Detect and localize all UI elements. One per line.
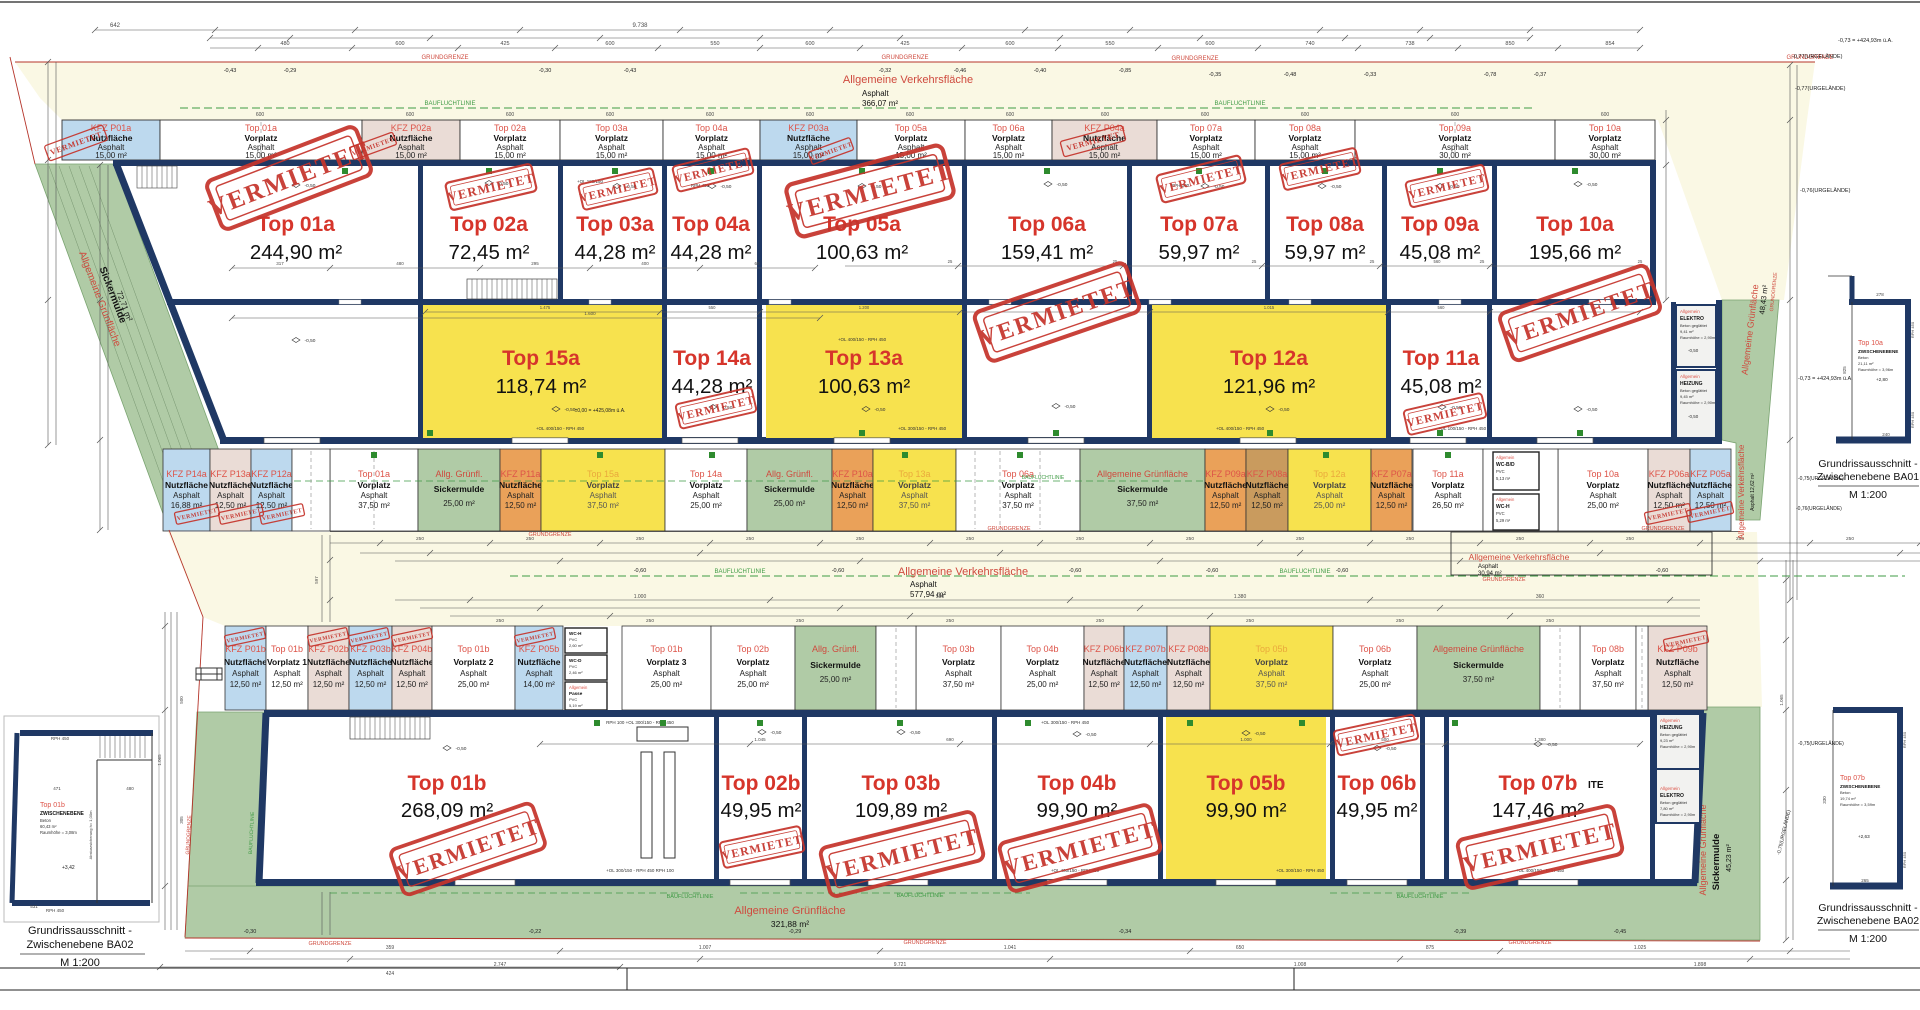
svg-text:-0,50: -0,50	[1057, 182, 1068, 188]
svg-text:Top 11a: Top 11a	[1432, 469, 1463, 479]
svg-text:Asphalt: Asphalt	[232, 669, 259, 678]
svg-text:Top 04b: Top 04b	[1026, 644, 1058, 654]
svg-text:250: 250	[646, 618, 654, 624]
svg-text:25: 25	[1480, 259, 1485, 264]
svg-text:-0,50: -0,50	[565, 407, 576, 413]
svg-text:12,50 m²: 12,50 m²	[215, 501, 247, 510]
svg-text:Nutzfläche: Nutzfläche	[307, 657, 350, 667]
svg-text:825: 825	[1842, 366, 1847, 374]
svg-text:72,45 m²: 72,45 m²	[449, 241, 530, 264]
svg-text:425: 425	[500, 41, 509, 47]
svg-text:-0,50: -0,50	[771, 730, 782, 736]
svg-text:Allg. Grünfl.: Allg. Grünfl.	[435, 469, 482, 479]
svg-text:Beton geglättet: Beton geglättet	[1660, 732, 1688, 737]
svg-text:BAUFLUCHTLINIE: BAUFLUCHTLINIE	[714, 569, 765, 575]
svg-text:Raumhöhe = 2,90m: Raumhöhe = 2,90m	[1660, 744, 1696, 749]
svg-text:Nutzfläche: Nutzfläche	[787, 133, 830, 143]
svg-text:1.015: 1.015	[1264, 305, 1275, 310]
svg-text:59,97 m²: 59,97 m²	[1285, 241, 1366, 264]
svg-text:Vorplatz 1: Vorplatz 1	[267, 657, 307, 667]
svg-text:9,41 m²: 9,41 m²	[1680, 329, 1694, 334]
svg-text:KFZ P08a: KFZ P08a	[1247, 469, 1288, 479]
svg-text:738: 738	[1405, 41, 1414, 47]
svg-text:Raumhöhe = 3,59m: Raumhöhe = 3,59m	[1840, 802, 1876, 807]
svg-text:Top 09a: Top 09a	[1401, 213, 1479, 236]
svg-text:Asphalt: Asphalt	[399, 669, 426, 678]
svg-text:25: 25	[1638, 259, 1643, 264]
svg-text:Nutzfläche: Nutzfläche	[1124, 657, 1167, 667]
svg-text:480: 480	[280, 41, 289, 47]
svg-text:650: 650	[1236, 945, 1245, 951]
svg-text:-0,50: -0,50	[1547, 742, 1558, 748]
svg-text:240: 240	[1882, 432, 1890, 437]
svg-text:Sickermulde: Sickermulde	[434, 484, 485, 494]
svg-text:Top 08a: Top 08a	[1286, 213, 1364, 236]
svg-text:Vorplatz: Vorplatz	[992, 133, 1025, 143]
svg-text:Allgemeine Verkehrsfläche: Allgemeine Verkehrsfläche	[1469, 552, 1570, 562]
svg-text:-0,60: -0,60	[1656, 568, 1669, 574]
svg-text:49,95 m²: 49,95 m²	[1337, 799, 1418, 822]
svg-text:Allgemeine Verkehrsfläche: Allgemeine Verkehrsfläche	[898, 566, 1028, 578]
svg-text:Top 07b: Top 07b	[1499, 772, 1578, 795]
svg-text:25: 25	[948, 259, 953, 264]
svg-text:ZWISCHENEBENE: ZWISCHENEBENE	[1858, 349, 1898, 354]
svg-text:-0,50: -0,50	[1255, 731, 1266, 737]
svg-text:1.000: 1.000	[634, 594, 647, 600]
svg-text:Asphalt: Asphalt	[862, 89, 889, 98]
svg-text:Vorplatz: Vorplatz	[587, 480, 620, 490]
svg-text:-0,37: -0,37	[1534, 72, 1547, 78]
svg-text:500: 500	[936, 594, 945, 600]
svg-text:KFZ P06b: KFZ P06b	[1084, 644, 1125, 654]
svg-text:60: 60	[754, 261, 760, 266]
svg-text:9.721: 9.721	[894, 962, 907, 968]
svg-text:Top 10a: Top 10a	[1589, 123, 1621, 133]
svg-text:60,43 m²: 60,43 m²	[40, 824, 57, 829]
svg-text:KFZ P05b: KFZ P05b	[519, 644, 560, 654]
svg-text:25,00 m²: 25,00 m²	[1587, 501, 1619, 510]
svg-text:37,50 m²: 37,50 m²	[1463, 675, 1495, 684]
svg-text:-0,43: -0,43	[224, 68, 237, 74]
svg-text:Nutzfläche: Nutzfläche	[1656, 657, 1699, 667]
svg-text:Top 05b: Top 05b	[1207, 772, 1286, 795]
svg-text:Allgemeine Verkehrsfläche: Allgemeine Verkehrsfläche	[843, 74, 973, 86]
svg-text:600: 600	[906, 112, 915, 118]
svg-text:Allgemein: Allgemein	[569, 685, 588, 690]
svg-text:-0,35: -0,35	[1209, 72, 1222, 78]
svg-text:Asphalt: Asphalt	[1435, 491, 1462, 500]
svg-text:15,00 m²: 15,00 m²	[95, 151, 127, 160]
svg-text:49,95 m²: 49,95 m²	[721, 799, 802, 822]
svg-text:WC-D: WC-D	[569, 658, 582, 663]
svg-text:25,00 m²: 25,00 m²	[443, 499, 475, 508]
svg-text:600: 600	[506, 112, 515, 118]
svg-text:5,29 m²: 5,29 m²	[1496, 518, 1511, 523]
svg-text:Top 10a: Top 10a	[1536, 213, 1614, 236]
svg-text:321,88 m²: 321,88 m²	[771, 919, 809, 929]
svg-text:HEIZUNG: HEIZUNG	[1680, 381, 1703, 387]
svg-text:600: 600	[1451, 112, 1460, 118]
svg-text:250: 250	[1296, 536, 1304, 542]
svg-text:Nutzfläche: Nutzfläche	[518, 657, 561, 667]
svg-text:Nutzfläche: Nutzfläche	[499, 480, 542, 490]
svg-text:531: 531	[30, 904, 38, 909]
svg-text:-0,75(URGELÄNDE): -0,75(URGELÄNDE)	[1798, 475, 1844, 482]
svg-text:244,90 m²: 244,90 m²	[250, 241, 342, 264]
svg-text:Top 10a: Top 10a	[1587, 469, 1619, 479]
svg-text:100,63 m²: 100,63 m²	[816, 241, 908, 264]
svg-text:BAUFLUCHTLINIE: BAUFLUCHTLINIE	[1214, 101, 1265, 107]
svg-text:Top 12a: Top 12a	[1313, 469, 1345, 479]
svg-text:-0,60: -0,60	[634, 568, 647, 574]
svg-text:Top 06b: Top 06b	[1338, 772, 1417, 795]
svg-text:Asphalt: Asphalt	[740, 669, 767, 678]
svg-text:Asphalt: Asphalt	[1595, 669, 1622, 678]
svg-text:Allgemein: Allgemein	[1660, 786, 1680, 791]
svg-text:317: 317	[276, 261, 284, 266]
svg-text:RPH 450: RPH 450	[46, 908, 65, 913]
svg-text:±0,00 = +425,08m ü.A.: ±0,00 = +425,08m ü.A.	[575, 408, 626, 414]
svg-text:Top 07a: Top 07a	[1190, 123, 1222, 133]
svg-text:Top 01b: Top 01b	[457, 644, 489, 654]
svg-text:9,23 m²: 9,23 m²	[1660, 738, 1674, 743]
svg-text:Top 01b: Top 01b	[40, 802, 65, 809]
svg-text:37,50 m²: 37,50 m²	[899, 501, 931, 510]
svg-text:560: 560	[1434, 259, 1442, 264]
svg-text:M 1:200: M 1:200	[1849, 933, 1887, 945]
svg-text:ELEKTRO: ELEKTRO	[1680, 316, 1704, 322]
svg-text:BAUFLUCHTLINIE: BAUFLUCHTLINIE	[1397, 894, 1444, 900]
svg-text:159,41 m²: 159,41 m²	[1001, 241, 1093, 264]
svg-text:250: 250	[946, 618, 954, 624]
svg-text:Top 02b: Top 02b	[722, 772, 801, 795]
svg-text:37,50 m²: 37,50 m²	[1592, 680, 1624, 689]
svg-text:15,00 m²: 15,00 m²	[596, 151, 628, 160]
svg-text:-0,34: -0,34	[1119, 929, 1132, 935]
svg-text:Top 03b: Top 03b	[942, 644, 974, 654]
svg-text:Allgemein: Allgemein	[1680, 374, 1700, 379]
svg-text:M 1:200: M 1:200	[1849, 489, 1887, 501]
svg-text:Asphalt: Asphalt	[460, 669, 487, 678]
svg-text:+OL 400/150 - RPH 450: +OL 400/150 - RPH 450	[1216, 426, 1265, 431]
svg-text:Top 05a: Top 05a	[823, 213, 901, 236]
svg-text:250: 250	[1406, 536, 1414, 542]
svg-text:600: 600	[805, 41, 814, 47]
svg-text:Asphalt: Asphalt	[1254, 491, 1281, 500]
svg-text:Top 15a: Top 15a	[587, 469, 619, 479]
svg-text:-0,73 = +424,93m ü.A.: -0,73 = +424,93m ü.A.	[1838, 38, 1893, 44]
svg-text:Allgemeine Verkehrsfläche: Allgemeine Verkehrsfläche	[1737, 444, 1746, 539]
svg-text:-0,30: -0,30	[539, 68, 552, 74]
svg-text:Top 07a: Top 07a	[1160, 213, 1238, 236]
svg-text:PVC: PVC	[569, 697, 577, 702]
svg-text:Top 04b: Top 04b	[1038, 772, 1117, 795]
svg-text:Asphalt: Asphalt	[910, 580, 937, 589]
svg-text:Nutzfläche: Nutzfläche	[224, 657, 267, 667]
svg-text:30,00 m²: 30,00 m²	[1589, 151, 1621, 160]
svg-text:600: 600	[406, 112, 415, 118]
svg-text:-0,50: -0,50	[1065, 404, 1076, 410]
svg-text:1.380: 1.380	[1234, 594, 1247, 600]
svg-text:Asphalt: Asphalt	[1656, 491, 1683, 500]
svg-text:Top 03a: Top 03a	[595, 123, 627, 133]
svg-text:KFZ P07a: KFZ P07a	[1371, 469, 1412, 479]
svg-text:600: 600	[256, 112, 265, 118]
svg-text:Nutzfläche: Nutzfläche	[165, 480, 208, 490]
svg-text:12,50 m²: 12,50 m²	[271, 680, 303, 689]
svg-text:600: 600	[605, 41, 614, 47]
svg-text:600: 600	[395, 41, 404, 47]
svg-text:GRUNDGRENZE: GRUNDGRENZE	[421, 55, 468, 61]
svg-text:GRUNDGRENZE: GRUNDGRENZE	[528, 532, 571, 538]
svg-text:Asphalt: Asphalt	[945, 669, 972, 678]
svg-text:250: 250	[1246, 618, 1254, 624]
svg-text:12,50 m²: 12,50 m²	[1662, 680, 1694, 689]
svg-text:Top 03a: Top 03a	[576, 213, 654, 236]
svg-text:Vorplatz: Vorplatz	[1289, 133, 1322, 143]
svg-text:Asphalt: Asphalt	[526, 669, 553, 678]
svg-text:12,50 m²: 12,50 m²	[1210, 501, 1242, 510]
svg-text:GRUNDGRENZE: GRUNDGRENZE	[1508, 940, 1551, 946]
svg-text:PVC: PVC	[569, 637, 577, 642]
svg-text:ZWISCHENEBENE: ZWISCHENEBENE	[1840, 784, 1880, 789]
svg-text:195,66 m²: 195,66 m²	[1529, 241, 1621, 264]
svg-text:PVC: PVC	[1496, 511, 1505, 516]
svg-text:121,96 m²: 121,96 m²	[1223, 375, 1315, 398]
svg-text:Sickermulde: Sickermulde	[1711, 834, 1722, 891]
svg-text:25,00 m²: 25,00 m²	[737, 680, 769, 689]
svg-text:875: 875	[1426, 945, 1435, 951]
svg-text:Nutzfläche: Nutzfläche	[1167, 657, 1210, 667]
svg-text:425: 425	[900, 41, 909, 47]
svg-text:Sickermulde: Sickermulde	[764, 484, 815, 494]
svg-text:Sickermulde: Sickermulde	[810, 660, 861, 670]
svg-text:-0,60: -0,60	[1069, 568, 1082, 574]
svg-text:59,97 m²: 59,97 m²	[1159, 241, 1240, 264]
svg-text:12,50 m²: 12,50 m²	[355, 680, 387, 689]
svg-text:600: 600	[1006, 112, 1015, 118]
svg-text:Asphalt: Asphalt	[1316, 491, 1343, 500]
svg-text:Sickermulde: Sickermulde	[1453, 660, 1504, 670]
svg-text:-0,78: -0,78	[1484, 72, 1497, 78]
svg-text:Nutzfläche: Nutzfläche	[1370, 480, 1413, 490]
svg-text:+OL 300/150 - RPH 450 RPH 100: +OL 300/150 - RPH 450 RPH 100	[606, 868, 674, 873]
svg-text:1.898: 1.898	[1694, 962, 1707, 968]
svg-text:1.600: 1.600	[584, 311, 596, 316]
svg-text:560: 560	[1438, 305, 1446, 310]
svg-text:ELEKTRO: ELEKTRO	[1660, 793, 1684, 799]
svg-text:424: 424	[386, 971, 395, 977]
svg-text:250: 250	[1846, 536, 1854, 542]
svg-text:600: 600	[606, 112, 615, 118]
svg-text:600: 600	[1101, 112, 1110, 118]
svg-text:250: 250	[1626, 536, 1634, 542]
svg-text:12,50 m²: 12,50 m²	[837, 501, 869, 510]
svg-text:Top 08b: Top 08b	[1592, 644, 1624, 654]
svg-text:-0,45: -0,45	[1614, 929, 1627, 935]
svg-text:12,50 m²: 12,50 m²	[505, 501, 537, 510]
svg-text:-0,30: -0,30	[244, 929, 257, 935]
svg-text:Top 01b: Top 01b	[650, 644, 682, 654]
svg-text:37,50 m²: 37,50 m²	[1127, 499, 1159, 508]
svg-text:+2,63: +2,63	[1858, 834, 1870, 839]
svg-text:44,28 m²: 44,28 m²	[672, 375, 753, 398]
svg-text:250: 250	[636, 536, 644, 542]
svg-text:Asphalt: Asphalt	[1212, 491, 1239, 500]
svg-text:Asphalt: Asphalt	[1132, 669, 1159, 678]
svg-text:KFZ P09a: KFZ P09a	[1205, 469, 1246, 479]
svg-text:-0,50: -0,50	[1587, 182, 1598, 188]
svg-text:37,50 m²: 37,50 m²	[943, 680, 975, 689]
svg-text:12,50 m²: 12,50 m²	[1376, 501, 1408, 510]
svg-text:-0,77(URGELÄNDE): -0,77(URGELÄNDE)	[1795, 85, 1846, 92]
svg-text:Asphalt: Asphalt	[1029, 669, 1056, 678]
svg-text:1.380: 1.380	[1534, 737, 1546, 742]
svg-text:690: 690	[946, 737, 954, 742]
svg-text:-0,50: -0,50	[1279, 407, 1290, 413]
svg-text:Allgemein: Allgemein	[1680, 309, 1700, 314]
svg-text:12,50 m²: 12,50 m²	[396, 680, 428, 689]
svg-text:15,00 m²: 15,00 m²	[696, 151, 728, 160]
svg-text:Top 05b: Top 05b	[1255, 644, 1287, 654]
svg-text:15,00 m²: 15,00 m²	[395, 151, 427, 160]
svg-text:-0,60: -0,60	[832, 568, 845, 574]
svg-text:Nutzfläche: Nutzfläche	[1689, 480, 1732, 490]
svg-text:250: 250	[1186, 536, 1194, 542]
svg-text:250: 250	[1096, 618, 1104, 624]
svg-text:12,50 m²: 12,50 m²	[230, 680, 262, 689]
svg-text:1.000: 1.000	[1240, 737, 1252, 742]
svg-text:2,60 m²: 2,60 m²	[569, 643, 583, 648]
svg-text:-0,39: -0,39	[1454, 929, 1467, 935]
svg-text:Top 04a: Top 04a	[672, 213, 750, 236]
svg-text:12,50 m²: 12,50 m²	[1173, 680, 1205, 689]
svg-text:KFZ P06a: KFZ P06a	[1649, 469, 1690, 479]
svg-text:Vorplatz: Vorplatz	[1002, 480, 1035, 490]
svg-text:25,00 m²: 25,00 m²	[1314, 501, 1346, 510]
svg-text:265: 265	[1861, 878, 1869, 883]
svg-text:Top 02b: Top 02b	[737, 644, 769, 654]
svg-text:26,50 m²: 26,50 m²	[1432, 501, 1464, 510]
svg-text:147,46 m²: 147,46 m²	[1492, 799, 1584, 822]
svg-text:14,00 m²: 14,00 m²	[523, 680, 555, 689]
svg-text:-0,60: -0,60	[1206, 568, 1219, 574]
svg-text:Asphalt: Asphalt	[693, 491, 720, 500]
svg-text:Vorplatz: Vorplatz	[898, 480, 931, 490]
svg-text:Asphalt: Asphalt	[1175, 669, 1202, 678]
svg-text:600: 600	[1601, 112, 1610, 118]
svg-text:Top 07b: Top 07b	[1840, 775, 1865, 782]
svg-text:Asphalt: Asphalt	[217, 491, 244, 500]
svg-text:WC-B/D: WC-B/D	[1496, 462, 1515, 468]
svg-text:Asphalt 12,62 m²: Asphalt 12,62 m²	[1750, 473, 1756, 511]
svg-text:-0,22: -0,22	[529, 929, 542, 935]
svg-text:PVC: PVC	[1496, 469, 1505, 474]
svg-text:Allg. Grünfl.: Allg. Grünfl.	[766, 469, 813, 479]
svg-text:Nutzfläche: Nutzfläche	[209, 480, 252, 490]
svg-text:Grundrissausschnitt -: Grundrissausschnitt -	[1818, 902, 1918, 914]
svg-text:GRUNDGRENZE: GRUNDGRENZE	[1641, 526, 1684, 532]
svg-text:Raumhöhe = 3,96m: Raumhöhe = 3,96m	[1858, 367, 1894, 372]
svg-text:-0,50: -0,50	[1688, 348, 1699, 353]
svg-text:+OL 400/150 - RPH 450: +OL 400/150 - RPH 450	[536, 426, 585, 431]
svg-text:Asphalt: Asphalt	[361, 491, 388, 500]
svg-text:-0,50: -0,50	[1688, 414, 1699, 419]
svg-text:480: 480	[126, 786, 134, 791]
svg-text:KFZ P10a: KFZ P10a	[832, 469, 873, 479]
svg-text:1.008: 1.008	[1294, 962, 1307, 968]
svg-text:GRUNDGRENZE: GRUNDGRENZE	[903, 940, 946, 946]
svg-text:Beton: Beton	[1840, 790, 1850, 795]
svg-text:Asphalt: Asphalt	[173, 491, 200, 500]
svg-text:250: 250	[526, 536, 534, 542]
svg-text:Allgemeine Grünfläche: Allgemeine Grünfläche	[734, 905, 845, 917]
svg-text:Vorplatz: Vorplatz	[737, 657, 770, 667]
svg-text:250: 250	[856, 536, 864, 542]
svg-text:BAUFLUCHTLINIE: BAUFLUCHTLINIE	[897, 893, 944, 899]
svg-text:Beton geglättet: Beton geglättet	[1680, 323, 1708, 328]
svg-text:Vorplatz: Vorplatz	[1190, 133, 1223, 143]
svg-text:Asphalt: Asphalt	[653, 669, 680, 678]
svg-text:Asphalt: Asphalt	[357, 669, 384, 678]
svg-text:7,80 m²: 7,80 m²	[1660, 806, 1674, 811]
svg-text:366,07 m²: 366,07 m²	[862, 99, 898, 108]
svg-text:Top 14a: Top 14a	[690, 469, 722, 479]
svg-text:-0,48: -0,48	[1284, 72, 1297, 78]
svg-text:RPH 450: RPH 450	[1910, 321, 1915, 338]
svg-text:Nutzfläche: Nutzfläche	[1648, 480, 1691, 490]
svg-text:Top 02a: Top 02a	[450, 213, 528, 236]
svg-text:Asphalt: Asphalt	[1362, 669, 1389, 678]
svg-text:RPH 450: RPH 450	[51, 736, 70, 741]
svg-text:KFZ P11a: KFZ P11a	[501, 469, 541, 479]
svg-text:99,90 m²: 99,90 m²	[1037, 799, 1118, 822]
svg-text:KFZ P05a: KFZ P05a	[1690, 469, 1731, 479]
svg-text:Top 06a: Top 06a	[1008, 213, 1086, 236]
svg-text:642: 642	[110, 23, 121, 29]
svg-text:25,00 m²: 25,00 m²	[690, 501, 722, 510]
svg-text:WC-H: WC-H	[569, 631, 582, 636]
svg-text:Vorplatz: Vorplatz	[595, 133, 628, 143]
svg-text:Vorplatz: Vorplatz	[1359, 657, 1392, 667]
svg-text:Top 01a: Top 01a	[257, 213, 335, 236]
svg-text:Grundrissausschnitt -: Grundrissausschnitt -	[28, 925, 132, 937]
svg-text:25,00 m²: 25,00 m²	[1359, 680, 1391, 689]
svg-text:37,50 m²: 37,50 m²	[1002, 501, 1034, 510]
svg-text:854: 854	[1605, 41, 1614, 47]
svg-text:Allgemein: Allgemein	[1496, 455, 1515, 460]
svg-text:471: 471	[53, 786, 61, 791]
svg-text:Vorplatz: Vorplatz	[1592, 657, 1625, 667]
svg-text:-0,50: -0,50	[1386, 746, 1397, 752]
svg-text:Allgemeine Grünfläche: Allgemeine Grünfläche	[1433, 644, 1524, 654]
svg-text:550: 550	[1105, 41, 1114, 47]
svg-text:Vorplatz: Vorplatz	[1587, 480, 1620, 490]
svg-text:GRUNDGRENZE: GRUNDGRENZE	[881, 55, 928, 61]
svg-text:KFZ P12a: KFZ P12a	[251, 469, 292, 479]
svg-text:278: 278	[1876, 292, 1884, 297]
svg-text:Top 10a: Top 10a	[1858, 340, 1883, 347]
svg-text:Asphalt: Asphalt	[274, 669, 301, 678]
svg-text:250: 250	[796, 618, 804, 624]
svg-text:Vorplatz: Vorplatz	[1313, 480, 1346, 490]
svg-text:Top 06a: Top 06a	[992, 123, 1024, 133]
svg-text:Top 02a: Top 02a	[494, 123, 526, 133]
svg-text:Allgemein: Allgemein	[1660, 718, 1680, 723]
svg-text:Raumhöhe = 2,90m: Raumhöhe = 2,90m	[1660, 812, 1696, 817]
svg-text:-0,73 = +424,93m ü.A.: -0,73 = +424,93m ü.A.	[1798, 376, 1853, 382]
svg-text:Top 13a: Top 13a	[825, 347, 903, 370]
